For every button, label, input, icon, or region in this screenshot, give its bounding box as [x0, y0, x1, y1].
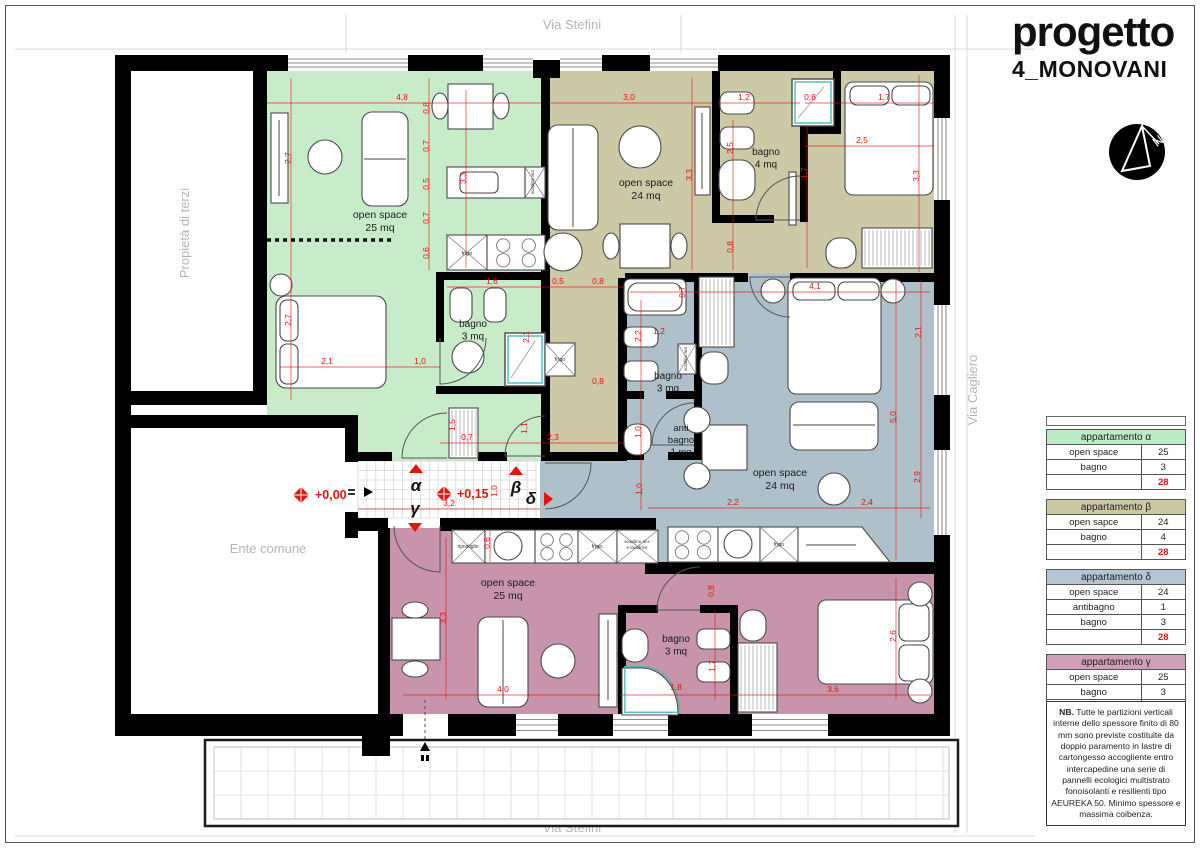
dimension-label: 2,7	[283, 152, 293, 164]
unit-letter-α: α	[411, 476, 423, 495]
furniture-circle	[494, 532, 522, 560]
room-label: 1 mq	[670, 447, 691, 458]
dimension-label: 1,6	[486, 276, 498, 286]
dimension-label: 3,0	[623, 92, 635, 102]
wall	[718, 55, 950, 71]
balcony	[205, 740, 958, 826]
furniture-circle	[724, 530, 752, 558]
wall	[115, 415, 358, 428]
neighbor-label-bottom-left: Ente comune	[230, 541, 307, 556]
stove	[487, 235, 545, 270]
wardrobe	[738, 643, 777, 712]
legend-area: 1	[1141, 600, 1185, 615]
wall	[934, 200, 950, 305]
dimension-label: 2,4	[861, 497, 873, 507]
wall	[436, 386, 549, 394]
shower	[792, 79, 834, 126]
furniture-rounded	[740, 610, 766, 641]
dimension-label: 2,9	[912, 471, 922, 483]
furniture-chair	[493, 93, 509, 119]
legend-area: 25	[1141, 670, 1185, 685]
legend-total: 28	[1141, 475, 1185, 490]
dimension-label: 0,7	[677, 286, 687, 298]
room-label: bagno	[752, 147, 780, 158]
dimension-label: 2,1	[521, 331, 531, 343]
furniture-circle	[544, 233, 582, 271]
dimension-label: 1,1	[519, 422, 529, 434]
legend-spacer	[1046, 416, 1186, 426]
legend-area: 24	[1141, 515, 1185, 530]
furniture-rounded	[450, 288, 472, 322]
appliance-label: ripostiglio	[457, 544, 478, 550]
furniture-chair	[402, 661, 428, 677]
legend-room: bagno	[1047, 615, 1142, 630]
furniture-circle	[818, 473, 850, 505]
legend-room: open sapce	[1047, 515, 1142, 530]
room-label: anti	[673, 423, 688, 434]
street-label-top: Via Stefini	[543, 17, 601, 32]
legend-area: 3	[1141, 685, 1185, 700]
furniture-rect	[448, 84, 493, 129]
dimension-label: 2,2	[727, 497, 739, 507]
street-label-right: Via Cagliero	[965, 355, 980, 426]
neighbor-label-left: Propietà di terzi	[177, 188, 192, 278]
dimension-label: 0,8	[804, 92, 816, 102]
wall	[934, 535, 950, 736]
room-label: bagno	[459, 319, 487, 330]
legend-header: appartamento δ	[1047, 570, 1186, 585]
furniture-chair	[603, 233, 619, 259]
room-label: 25 mq	[493, 590, 522, 602]
dimension-label: 2,2	[633, 330, 643, 342]
dimension-label: 4,8	[396, 92, 408, 102]
wall	[115, 714, 403, 736]
note-text: Tutte le partizioni verticali interne de…	[1051, 707, 1180, 819]
room-label: 3 mq	[657, 384, 679, 395]
dimension-label: 2,5	[856, 135, 868, 145]
dimension-label: 0,6	[482, 537, 492, 549]
unit-letter-δ: δ	[526, 489, 537, 508]
legend-area: 25	[1141, 445, 1185, 460]
dimension-label: 2,7	[283, 314, 293, 326]
legend-header: appartamento α	[1047, 430, 1186, 445]
appliance-label: scaldino acs	[530, 169, 535, 194]
legend-header: appartamento γ	[1047, 655, 1186, 670]
dimension-label: 2,5	[725, 142, 735, 154]
legend-area: 4	[1141, 530, 1185, 545]
dimension-label: 4,0	[497, 684, 509, 694]
unit-letter-γ: γ	[410, 499, 421, 518]
dimension-label: 4,1	[809, 281, 821, 291]
furniture-rounded	[628, 283, 682, 311]
wall	[378, 528, 390, 716]
dimension-label: 1,0	[489, 485, 499, 497]
dimension-label: 0,6	[421, 247, 431, 259]
wall	[828, 714, 950, 736]
furniture-circle	[684, 463, 710, 489]
dimension-label: 2,1	[913, 326, 923, 338]
legend-room: bagno	[1047, 685, 1142, 700]
dimension-label: 2,3	[547, 432, 559, 442]
furniture-chair	[671, 233, 687, 259]
dimension-label: 2,1	[321, 356, 333, 366]
wall	[545, 452, 625, 461]
construction-note: NB. Tutte le partizioni verticali intern…	[1046, 701, 1186, 826]
furniture-circle	[270, 274, 292, 296]
room-label: 24 mq	[765, 480, 794, 492]
furniture-rounded	[892, 86, 930, 105]
dimension-label: 0,8	[592, 376, 604, 386]
legend-total-label	[1047, 545, 1142, 560]
note-lead: NB.	[1059, 707, 1074, 717]
legend-room: open space	[1047, 445, 1142, 460]
legend-total: 28	[1141, 545, 1185, 560]
room-label: 3 mq	[665, 647, 687, 658]
unit-letter-β: β	[510, 478, 522, 497]
room-label: 4 mq	[755, 160, 777, 171]
dimension-label: 0,8	[592, 276, 604, 286]
stove	[535, 530, 578, 563]
appliance-label: frigo	[462, 251, 473, 257]
wall	[934, 395, 950, 450]
wall	[478, 452, 507, 461]
wall	[558, 714, 613, 736]
dimension-label: 2,6	[888, 630, 898, 642]
furniture-chair	[402, 602, 428, 618]
balcony-door-bar	[421, 755, 424, 761]
dimension-label: 1,7	[707, 660, 717, 672]
appliance-label: e lavatrice	[627, 545, 648, 550]
legend-room: open space	[1047, 585, 1142, 600]
wall	[436, 280, 444, 342]
legend-room: open space	[1047, 670, 1142, 685]
floor-plan-canvas: Via Stefini Via Stefini Via Cagliero Pro…	[0, 0, 1200, 848]
dimension-label: 0,7	[421, 140, 431, 152]
legend-table-beta: appartamento βopen sapce24bagno428	[1046, 499, 1186, 560]
dimension-label: 0,5	[552, 276, 564, 286]
dimension-label: 1,2	[653, 326, 665, 336]
wall	[618, 605, 658, 613]
dimension-label: 1,5	[447, 419, 457, 431]
balcony-pillar	[362, 736, 390, 756]
project-subtitle: 4_MONOVANI	[1012, 56, 1190, 83]
furniture-rounded	[899, 604, 929, 641]
wardrobe	[699, 277, 734, 347]
north-arrow-icon: N	[1109, 124, 1166, 180]
legend-total: 28	[1141, 630, 1185, 645]
room-label: bagno	[662, 634, 690, 645]
title-block: progetto 4_MONOVANI	[1012, 10, 1190, 83]
legend-area: 3	[1141, 460, 1185, 475]
furniture-rounded	[700, 352, 728, 384]
furniture-circle	[452, 341, 484, 373]
furniture-rounded	[790, 402, 878, 450]
furniture-circle	[908, 582, 932, 606]
wall	[345, 512, 358, 538]
wall	[115, 391, 267, 405]
dimension-label: 0,8	[421, 102, 431, 114]
furniture-rect	[702, 425, 747, 470]
wall	[345, 415, 358, 462]
furniture-circle	[908, 679, 932, 703]
furniture-rounded	[899, 645, 929, 681]
dimension-label: 1,0	[634, 483, 644, 495]
legend-room: bagno	[1047, 460, 1142, 475]
legend-area: 3	[1141, 615, 1185, 630]
room-label: open space	[753, 467, 807, 479]
wall	[712, 71, 720, 223]
room-label: open space	[619, 177, 673, 189]
furniture-circle	[541, 644, 575, 678]
furniture-rounded	[826, 238, 856, 268]
dimension-label: 1,7	[799, 167, 809, 179]
appliance-label: scaldino acs	[624, 539, 650, 544]
dimension-label: 0,5	[421, 178, 431, 190]
wall	[358, 452, 392, 461]
legend-total-label	[1047, 630, 1142, 645]
wall	[934, 55, 950, 118]
project-title: progetto	[1012, 10, 1190, 54]
dimension-label: 5,0	[888, 411, 898, 423]
legend-room: bagno	[1047, 530, 1142, 545]
room-label: 24 mq	[631, 190, 660, 202]
room-label: open space	[353, 209, 407, 221]
wall	[448, 714, 516, 736]
dimension-label: 1,2	[738, 92, 750, 102]
wall	[668, 714, 752, 736]
datum-label: +0,15	[457, 487, 489, 501]
wall	[253, 55, 267, 405]
room-label: bagno	[654, 371, 682, 382]
dimension-label: 3,3	[458, 172, 468, 184]
legend-total-label	[1047, 475, 1142, 490]
furniture-rounded	[622, 629, 648, 662]
furniture-circle	[308, 140, 342, 174]
dimension-label: 3,3	[684, 169, 694, 181]
room-label: 3 mq	[462, 332, 484, 343]
room-label: 25 mq	[365, 222, 394, 234]
wall	[602, 55, 650, 71]
appliance-label: scaldino acs	[683, 346, 688, 371]
datum-label: +0,00	[315, 488, 347, 502]
legend-header: appartamento β	[1047, 500, 1186, 515]
wall	[440, 518, 656, 531]
furniture-circle	[619, 126, 661, 168]
appliance-label: frigo	[774, 542, 785, 548]
dimension-label: 1,0	[414, 356, 426, 366]
dimension-label: 0,7	[421, 212, 431, 224]
appliance-label: frigo	[592, 544, 603, 550]
furniture-rounded	[838, 282, 879, 300]
legend-table-alpha: appartamento αopen space25bagno328	[1046, 429, 1186, 490]
wall	[712, 215, 774, 223]
furniture-rounded	[697, 629, 730, 649]
dimension-label: 1,0	[633, 426, 643, 438]
wall	[730, 605, 738, 715]
appliance-label: frigo	[555, 357, 566, 363]
wall	[700, 605, 738, 613]
apartment-legend: appartamento αopen space25bagno328appart…	[1046, 416, 1186, 724]
furniture-chair	[432, 93, 448, 119]
furniture-rounded	[484, 288, 506, 322]
wall	[408, 55, 483, 71]
furniture-circle	[761, 279, 785, 303]
dimension-label: 3,3	[911, 170, 921, 182]
dimension-label: 0,8	[706, 585, 716, 597]
wall	[800, 126, 841, 134]
furniture-rect	[392, 618, 440, 660]
dimension-label: 1,8	[670, 682, 682, 692]
stove	[668, 527, 718, 562]
dimension-label: 3,3	[438, 612, 448, 624]
room-label: open space	[481, 577, 535, 589]
room-label: bagno	[668, 435, 694, 446]
furniture-rounded	[280, 344, 298, 384]
furniture-rect	[789, 172, 796, 225]
balcony-door-bar	[426, 755, 429, 761]
furniture-rounded	[719, 160, 755, 200]
dimension-label: 0,7	[461, 432, 473, 442]
legend-table-delta: appartamento δopen space24antibagno1bagn…	[1046, 569, 1186, 645]
legend-area: 24	[1141, 585, 1185, 600]
dimension-label: 1,7	[878, 92, 890, 102]
dimension-label: 0,8	[725, 241, 735, 253]
legend-room: antibagno	[1047, 600, 1142, 615]
furniture-circle	[881, 279, 905, 303]
dimension-label: 3,6	[827, 684, 839, 694]
furniture-rect	[620, 224, 670, 268]
